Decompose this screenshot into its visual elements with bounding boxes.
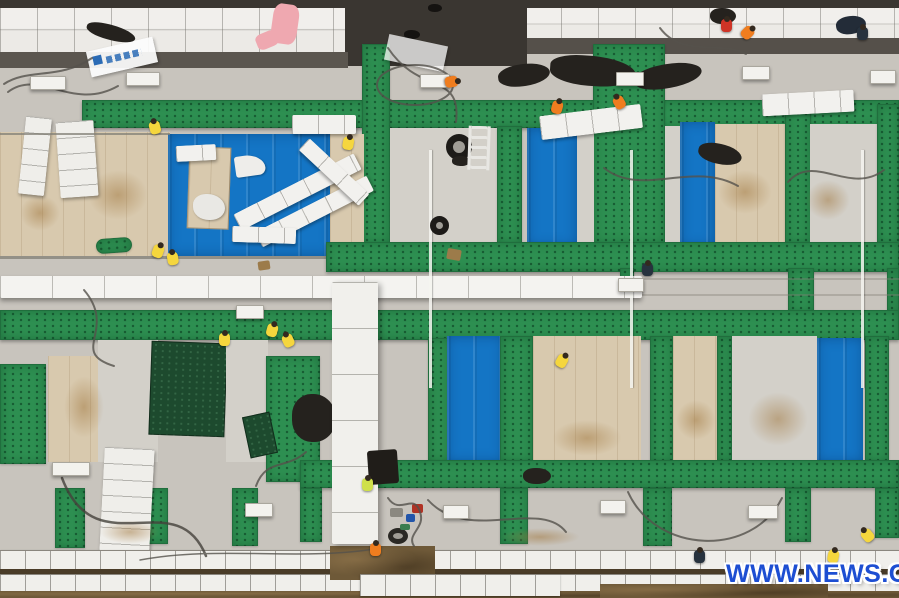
workers-layer (0, 0, 899, 598)
worker-head (860, 24, 866, 30)
worker-figure (553, 350, 573, 371)
worker-figure (361, 475, 375, 491)
worker-figure (278, 329, 297, 349)
worker-figure (856, 24, 870, 40)
worker-figure (218, 330, 232, 346)
worker-figure (738, 21, 759, 42)
worker-head (645, 260, 651, 266)
worker-figure (693, 547, 707, 563)
worker-figure (341, 133, 358, 151)
worker-head (373, 540, 379, 546)
worker-figure (165, 248, 182, 266)
worker-figure (641, 260, 655, 276)
worker-figure (856, 523, 877, 544)
worker-figure (549, 96, 567, 115)
news-watermark: WWW.NEWS.CN (726, 560, 899, 589)
worker-head (365, 475, 371, 481)
worker-figure (369, 540, 383, 556)
worker-head (222, 330, 228, 336)
worker-head (697, 547, 703, 553)
worker-figure (444, 74, 462, 91)
aerial-construction-photo: WWW.NEWS.CN (0, 0, 899, 598)
worker-head (454, 78, 461, 85)
worker-figure (720, 16, 734, 32)
worker-figure (146, 116, 164, 135)
worker-figure (609, 91, 629, 112)
worker-head (724, 16, 730, 22)
